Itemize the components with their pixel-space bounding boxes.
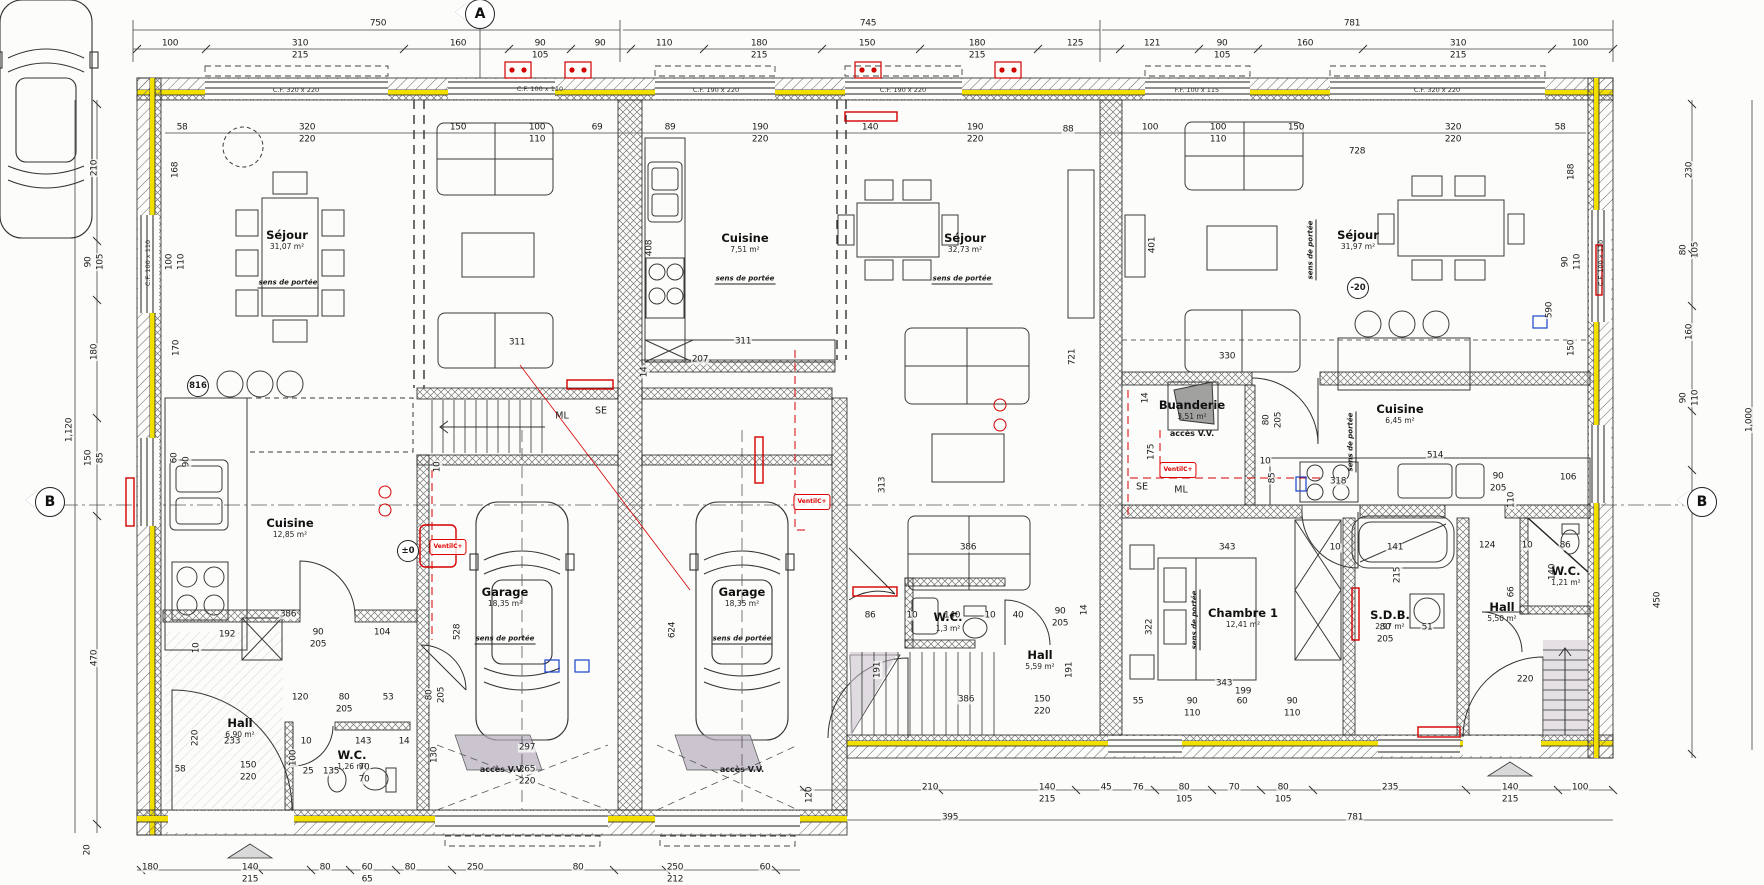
floor-plan-canvas: 7507457811003102151609010590110180215150… xyxy=(0,0,1764,885)
beam-lines xyxy=(414,100,1588,388)
party-walls xyxy=(417,100,1122,810)
exterior-walls xyxy=(137,78,1613,835)
hall1-floor-hatch xyxy=(165,632,283,808)
garage-shade xyxy=(455,735,762,770)
red-annotations xyxy=(126,62,1602,737)
floor-plan-drawing xyxy=(0,0,1764,885)
car-icon xyxy=(0,0,98,238)
